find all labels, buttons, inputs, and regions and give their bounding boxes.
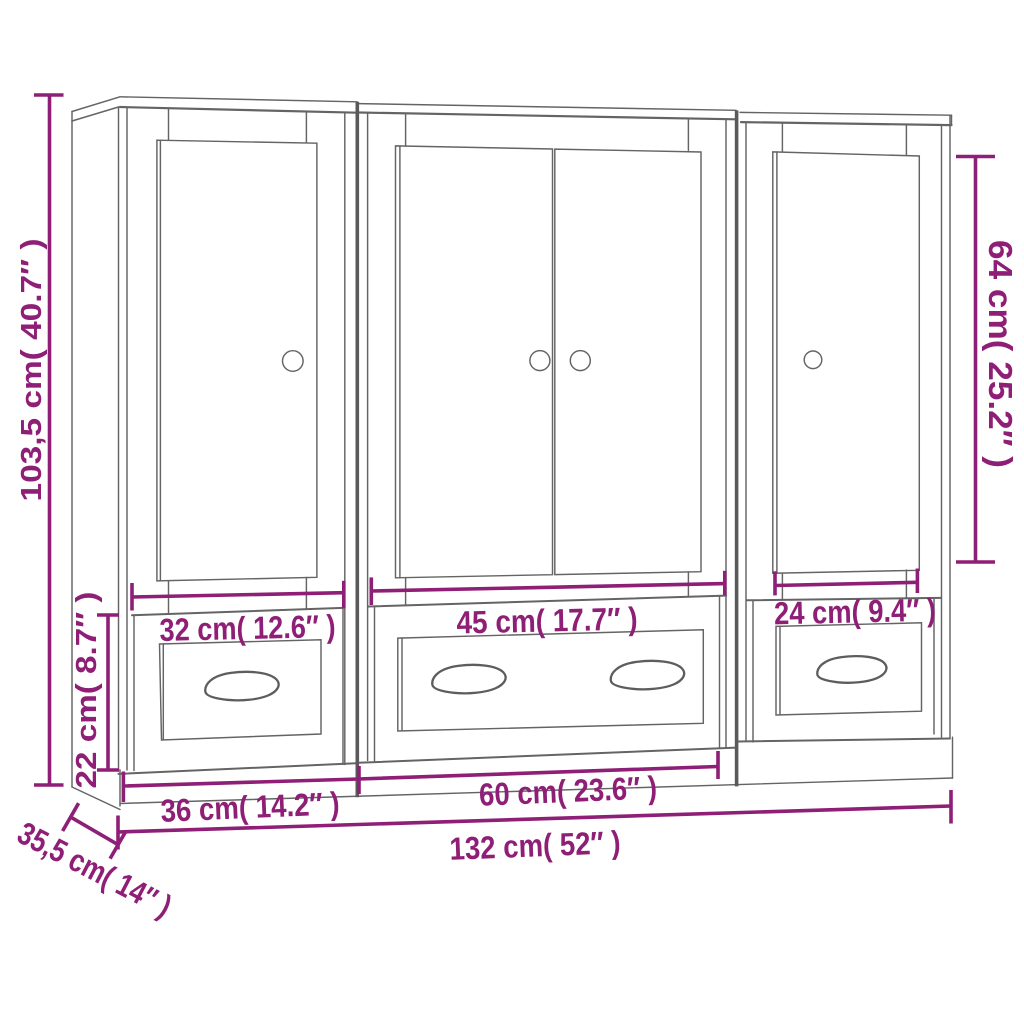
- svg-text:64 cm( 25.2″ ): 64 cm( 25.2″ ): [982, 240, 1019, 468]
- svg-text:45 cm( 17.7″ ): 45 cm( 17.7″ ): [456, 600, 638, 640]
- svg-text:132 cm( 52″ ): 132 cm( 52″ ): [449, 824, 621, 867]
- svg-text:24 cm( 9.4″ ): 24 cm( 9.4″ ): [774, 592, 937, 632]
- svg-text:60 cm( 23.6″ ): 60 cm( 23.6″ ): [478, 769, 657, 812]
- svg-text:22 cm( 8.7″ ): 22 cm( 8.7″ ): [71, 592, 103, 789]
- svg-text:32 cm( 12.6″ ): 32 cm( 12.6″ ): [159, 608, 336, 648]
- svg-text:103,5 cm( 40.7″ ): 103,5 cm( 40.7″ ): [16, 239, 48, 502]
